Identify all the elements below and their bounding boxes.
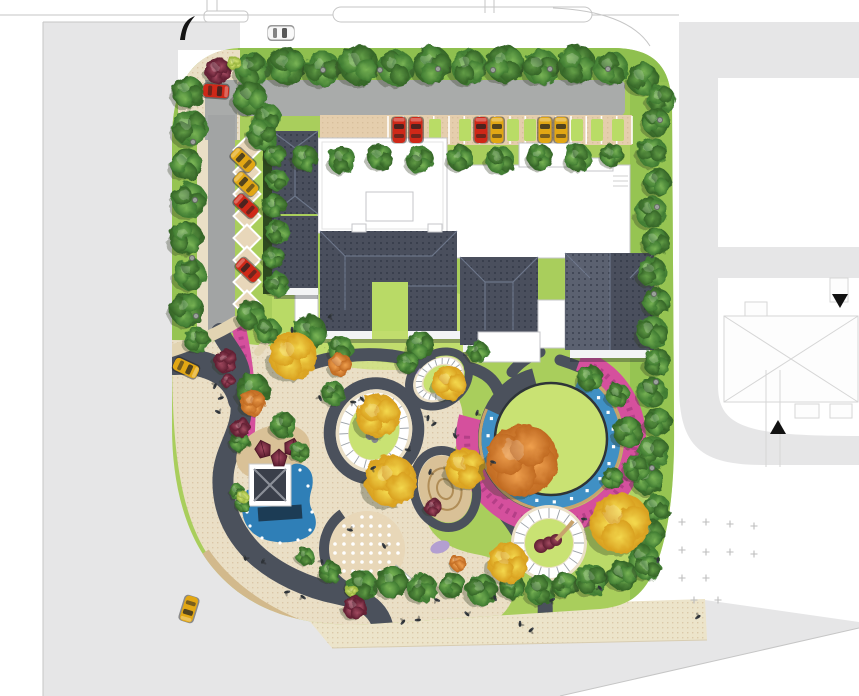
- water-stepping-dot: [570, 497, 573, 500]
- paving-dot: [333, 542, 337, 546]
- paving-dot: [360, 524, 364, 528]
- paving-dot: [369, 533, 373, 537]
- car-yellow: [553, 117, 569, 144]
- paving-dot: [342, 560, 346, 564]
- driveway-west: [208, 115, 235, 333]
- paving-dot: [387, 524, 391, 528]
- paving-dot: [351, 551, 355, 555]
- planted-stall: [524, 119, 536, 141]
- water-stepping-dot: [490, 417, 493, 420]
- paving-dot: [360, 551, 364, 555]
- paving-dot: [369, 551, 373, 555]
- paving-dot: [378, 551, 382, 555]
- car-red: [473, 117, 489, 144]
- paving-dot: [351, 542, 355, 546]
- pond-dot: [306, 484, 309, 487]
- paving-dot: [387, 551, 391, 555]
- lamp-post: [657, 117, 662, 122]
- lamp-post: [605, 66, 610, 71]
- water-stepping-dot: [612, 445, 615, 448]
- parcel-top-right: [718, 78, 859, 247]
- pond-dot: [278, 541, 281, 544]
- street-right-horizontal: [679, 247, 859, 278]
- car-yellow: [489, 117, 505, 144]
- lamp-post: [190, 139, 195, 144]
- paving-dot: [369, 515, 373, 519]
- water-stepping-dot: [586, 489, 589, 492]
- lamp-post: [649, 465, 654, 470]
- pond-dot: [248, 524, 251, 527]
- paving-dot: [387, 533, 391, 537]
- water-stepping-dot: [486, 434, 489, 437]
- paving-dot: [369, 524, 373, 528]
- lamp-post: [192, 197, 197, 202]
- lamp-post: [653, 379, 658, 384]
- paving-dot: [360, 542, 364, 546]
- paving-dot: [360, 560, 364, 564]
- car-yellow: [537, 117, 553, 144]
- paving-dot: [369, 542, 373, 546]
- pond-dot: [310, 510, 313, 513]
- paving-dot: [342, 524, 346, 528]
- pond-dot: [296, 538, 299, 541]
- lamp-post: [377, 67, 382, 72]
- pond-dot: [298, 468, 301, 471]
- courtyard-green: [372, 282, 408, 331]
- planted-stall: [459, 119, 471, 141]
- water-stepping-dot: [607, 462, 610, 465]
- paving-dot: [360, 515, 364, 519]
- paving-dot: [360, 533, 364, 537]
- planted-stall: [612, 119, 624, 141]
- pond-dot: [308, 528, 311, 531]
- lamp-post: [189, 255, 194, 260]
- flat-roof-terrace: [366, 192, 413, 221]
- lamp-post: [193, 313, 198, 318]
- paving-dot: [342, 542, 346, 546]
- car-white: [268, 25, 295, 41]
- site-plan-image: [0, 0, 859, 696]
- paving-dot: [396, 551, 400, 555]
- water-stepping-dot: [535, 499, 538, 502]
- paving-dot: [378, 533, 382, 537]
- site-plan-canvas: [0, 0, 859, 696]
- paving-dot: [342, 551, 346, 555]
- paving-dot: [342, 533, 346, 537]
- car-red: [391, 117, 407, 144]
- lamp-post: [435, 66, 440, 71]
- water-stepping-dot: [606, 411, 609, 414]
- car-red: [408, 117, 424, 144]
- paving-dot: [351, 560, 355, 564]
- paving-dot: [342, 569, 346, 573]
- lamp-post: [320, 67, 325, 72]
- planted-stall: [591, 119, 603, 141]
- paving-dot: [378, 524, 382, 528]
- paving-dot: [369, 560, 373, 564]
- paving-dot: [378, 542, 382, 546]
- pond-dot: [260, 536, 263, 539]
- lamp-post: [547, 66, 552, 71]
- water-stepping-dot: [553, 500, 556, 503]
- lamp-post: [654, 204, 659, 209]
- paving-dot: [351, 533, 355, 537]
- water-stepping-dot: [597, 396, 600, 399]
- hedge-strip: [263, 148, 272, 294]
- street-right-vertical: [679, 22, 718, 390]
- planted-stall: [507, 119, 519, 141]
- paving-dot: [396, 542, 400, 546]
- paving-dot: [387, 560, 391, 564]
- planted-stall: [571, 119, 583, 141]
- lamp-post: [651, 291, 656, 296]
- lamp-post: [490, 67, 495, 72]
- paving-dot: [378, 560, 382, 564]
- paving-dot: [333, 551, 337, 555]
